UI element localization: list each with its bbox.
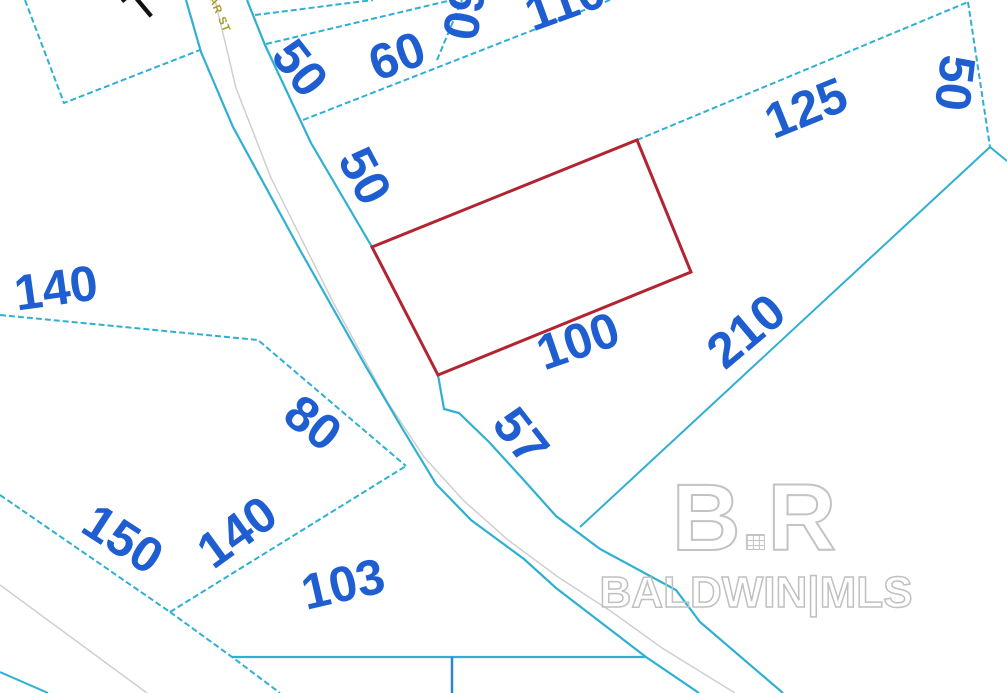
plat-map: 50 60 60 110 125 50 50 140 100 210 80 15… <box>0 0 1007 693</box>
boundary-140-80-line <box>0 315 406 466</box>
boundary-southwest-corner-line <box>170 612 280 693</box>
top-lot-divider-1 <box>255 0 373 15</box>
logo-grid-icon <box>746 534 765 550</box>
highlighted-parcel-outline <box>372 140 691 375</box>
gray-boundary-line <box>0 585 147 693</box>
baldwin-mls-logo: B R <box>672 480 838 556</box>
logo-letter-b: B <box>672 480 743 556</box>
bottom-left-corner-line <box>0 672 48 693</box>
logo-letter-r: R <box>768 480 839 556</box>
northwest-parcel-line <box>25 0 200 103</box>
dimension-label-50-right: 50 <box>927 52 983 113</box>
baldwin-mls-watermark-text: BALDWIN|MLS <box>600 571 913 615</box>
dimension-label-140-west: 140 <box>11 257 101 318</box>
